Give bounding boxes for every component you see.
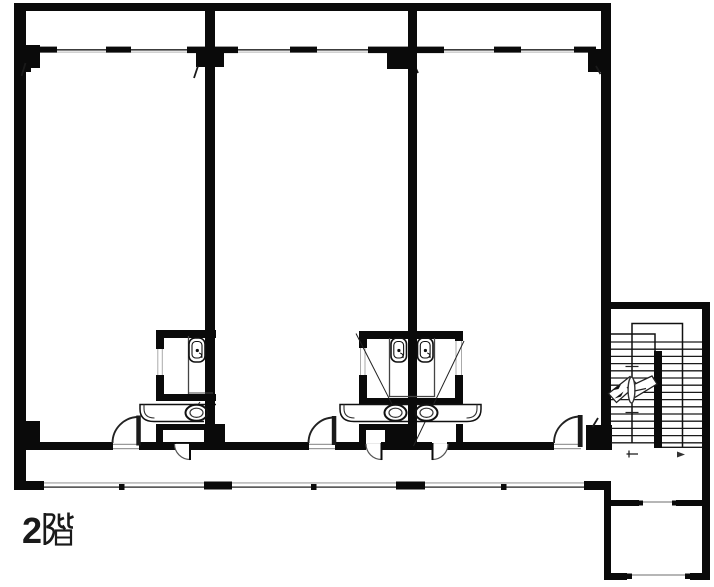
svg-text:2: 2 — [22, 510, 42, 551]
